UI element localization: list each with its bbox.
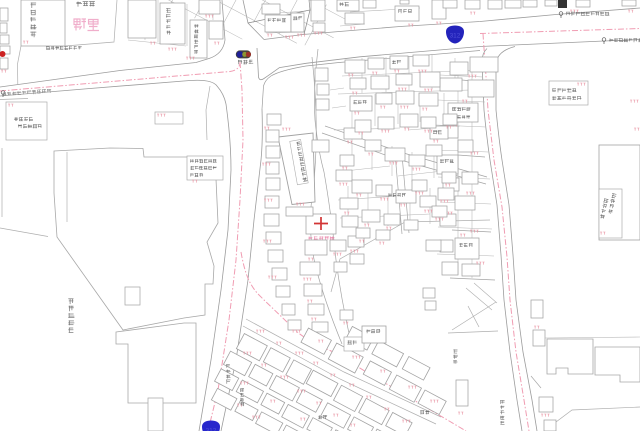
svg-text:312: 312 xyxy=(450,33,461,40)
svg-text:312: 312 xyxy=(206,428,217,431)
